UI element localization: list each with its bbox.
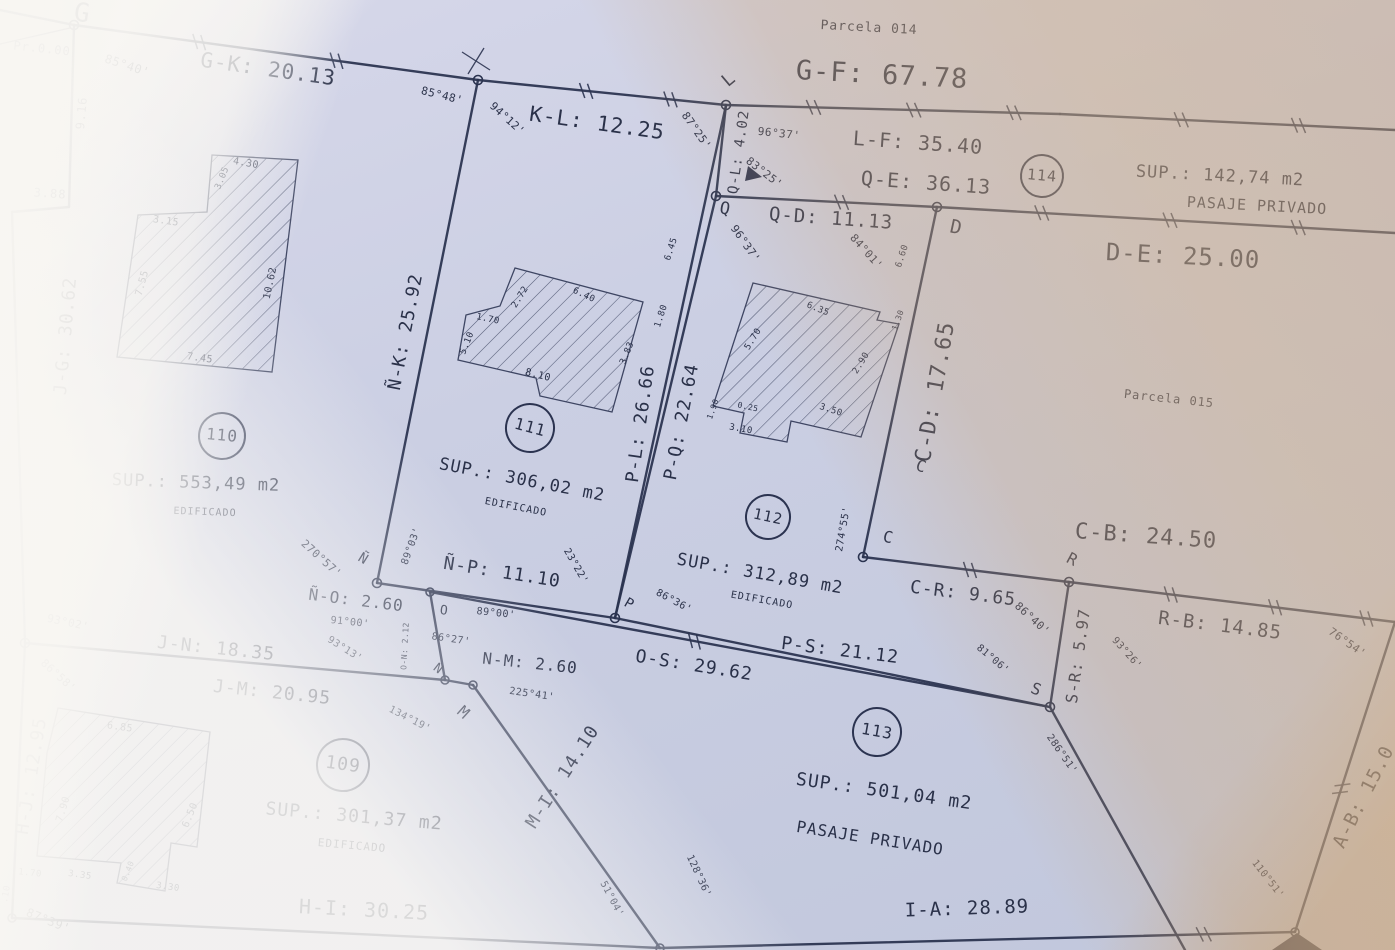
angle-label: 87°25' — [679, 109, 714, 151]
angle-label: 89°03' — [400, 526, 424, 567]
parcel-info: SUP.: 501,04 m2 — [795, 769, 974, 815]
boundary-line-lf-2 — [1060, 114, 1395, 130]
angle-label: 96°37' — [757, 125, 801, 142]
distance-label: S-R: 5.97 — [1062, 607, 1094, 704]
boundary-line-qd — [716, 196, 937, 207]
survey-tick-mark — [1332, 792, 1348, 794]
parcel-number: 114 — [1026, 165, 1058, 186]
parcel-info: Parcela 014 — [820, 18, 918, 38]
survey-plan-photo: GLQDCCRSMNOPÑG-K: 20.13K-L: 12.25G-F: 67… — [0, 0, 1395, 950]
parcel-number: 113 — [860, 719, 895, 743]
boundary-line-mi — [473, 685, 660, 948]
angle-label: 89°00' — [476, 606, 516, 621]
parcel-info: Pr.0.00 — [13, 39, 72, 59]
survey-tick-mark — [1335, 784, 1351, 786]
angle-label: 134°19' — [387, 704, 433, 735]
parcel-number: 110 — [205, 424, 238, 446]
building-dim: 1.70 — [18, 867, 43, 879]
angle-label: 23°22' — [561, 547, 590, 586]
vertex-letter: D — [948, 216, 964, 240]
plan-labels: GLQDCCRSMNOPÑG-K: 20.13K-L: 12.25G-F: 67… — [0, 0, 1395, 936]
survey-plan-canvas: GLQDCCRSMNOPÑG-K: 20.13K-L: 12.25G-F: 67… — [0, 0, 1395, 950]
boundary-line-pl — [615, 105, 726, 618]
building-dim: 1.90 — [705, 397, 721, 420]
vertex-letter: C — [881, 527, 895, 548]
distance-label: L-F: 35.40 — [852, 126, 984, 159]
parcel-info: Parcela 015 — [1123, 387, 1214, 410]
angle-label: 87°39' — [24, 905, 72, 935]
angle-label: 84°01' — [847, 231, 885, 271]
building-dim: 3.30 — [156, 881, 181, 894]
boundary-line-jg-2 — [12, 212, 25, 643]
distance-label: G-K: 20.13 — [199, 48, 337, 91]
parcel-info: SUP.: 142,74 m2 — [1135, 162, 1304, 191]
distance-label: Ñ-P: 11.10 — [442, 552, 562, 592]
distance-label: Ñ-K: 25.92 — [383, 272, 427, 392]
distance-label: O-S: 29.62 — [634, 646, 754, 685]
angle-label: 128°36' — [684, 853, 713, 899]
distance-label: M-I: 14.10 — [522, 721, 604, 832]
building-110-footprint — [117, 155, 298, 372]
angle-label: 93°26' — [1109, 635, 1143, 671]
building-dim: O-N: 2.12 — [399, 622, 410, 670]
angle-label: 91°00' — [330, 615, 370, 630]
parcel-number: 111 — [512, 414, 548, 441]
angle-label: 51°04' — [598, 879, 626, 919]
north-arrow-A — [1272, 933, 1322, 950]
angle-label: 225°41' — [509, 686, 556, 703]
angle-label: 85°40' — [103, 52, 151, 80]
parcel-info: SUP.: 306,02 m2 — [437, 454, 606, 506]
distance-label: R-B: 14.85 — [1157, 607, 1283, 644]
parcel-number: 112 — [752, 505, 785, 529]
building-dim: 3.35 — [68, 869, 93, 882]
building-dim: .10 — [0, 884, 13, 903]
parcel-info: PASAJE PRIVADO — [1186, 193, 1327, 218]
building-dim: 1.80 — [653, 303, 670, 329]
angle-label: 86°36' — [654, 587, 694, 615]
vertex-letter: G — [72, 0, 92, 29]
angle-label: 76°54' — [1326, 625, 1368, 660]
distance-label: I-A: 28.89 — [904, 895, 1029, 921]
angle-label: 81°06' — [974, 643, 1011, 677]
vertex-letter: Ñ — [355, 549, 372, 568]
boundary-line-jg-step — [12, 207, 69, 212]
vertex-letter: M — [454, 702, 474, 723]
distance-label: J-M: 20.95 — [212, 676, 332, 709]
distance-label: Q-E: 36.13 — [860, 166, 992, 199]
parcel-number: 109 — [324, 752, 362, 778]
vertex-letter: S — [1028, 678, 1045, 699]
angle-label: 93°02' — [46, 612, 91, 634]
angle-label: 86°27' — [431, 631, 471, 647]
boundary-line-ql — [716, 105, 726, 196]
distance-label: D-E: 25.00 — [1105, 238, 1261, 274]
parcel-info: EDIFICADO — [484, 496, 548, 519]
boundary-line-g-west — [0, 10, 74, 25]
building-dim: 6.45 — [663, 236, 680, 262]
distance-label: Q-L: 4.02 — [725, 109, 753, 195]
angle-label: 85°48' — [420, 84, 465, 107]
distance-label: Q-D: 11.13 — [768, 203, 894, 234]
angle-label: 86°40' — [1012, 599, 1052, 637]
vertex-letter: Q — [718, 198, 732, 220]
angle-label: 286°51' — [1044, 732, 1079, 776]
vertex-letter: R — [1064, 548, 1082, 570]
angle-label: 270°57' — [298, 537, 344, 580]
parcel-info: EDIFICADO — [317, 836, 386, 855]
building-dim: 6.60 — [894, 243, 911, 269]
distance-label: Ñ-O: 2.60 — [307, 585, 404, 616]
boundary-line-hi — [12, 918, 660, 948]
distance-label: 3.88 — [33, 185, 67, 201]
distance-label: K-L: 12.25 — [528, 102, 666, 145]
distance-label: 9.16 — [73, 96, 90, 130]
distance-label: N-M: 2.60 — [482, 649, 579, 678]
distance-label: H-I: 30.25 — [298, 894, 429, 925]
survey-cross-K — [462, 48, 490, 74]
distance-label: J-G: 30.62 — [50, 276, 81, 396]
angle-label: 86°58' — [38, 656, 78, 694]
distance-label: P-L: 26.66 — [622, 364, 659, 484]
angle-label: 274°55' — [834, 506, 853, 553]
vertex-letter: O — [439, 603, 449, 619]
distance-label: C-D: 17.65 — [911, 320, 960, 465]
distance-label: C-B: 24.50 — [1074, 519, 1218, 554]
angle-label: 96°37' — [728, 222, 763, 264]
parcel-info: EDIFICADO — [730, 590, 794, 612]
boundary-line-s-south — [1050, 707, 1185, 950]
angle-label: 93°13' — [325, 634, 364, 664]
angle-label: 110°51' — [1249, 858, 1286, 901]
distance-label: G-F: 67.78 — [795, 55, 969, 95]
boundary-line-kl — [478, 80, 726, 105]
distance-label: C-R: 9.65 — [909, 577, 1017, 611]
parcel-info: EDIFICADO — [173, 506, 237, 519]
vertex-letter: L — [718, 68, 740, 91]
parcel-info: SUP.: 312,89 m2 — [675, 550, 844, 599]
building-111-footprint — [458, 268, 643, 412]
parcel-info: SUP.: 553,49 m2 — [111, 470, 280, 496]
parcel-info: PASAJE PRIVADO — [795, 817, 945, 859]
vertex-letter: P — [621, 595, 637, 613]
angle-label: 94°12' — [487, 99, 527, 137]
parcel-info: SUP.: 301,37 m2 — [265, 798, 444, 834]
building-dim: 1.30 — [890, 308, 906, 331]
